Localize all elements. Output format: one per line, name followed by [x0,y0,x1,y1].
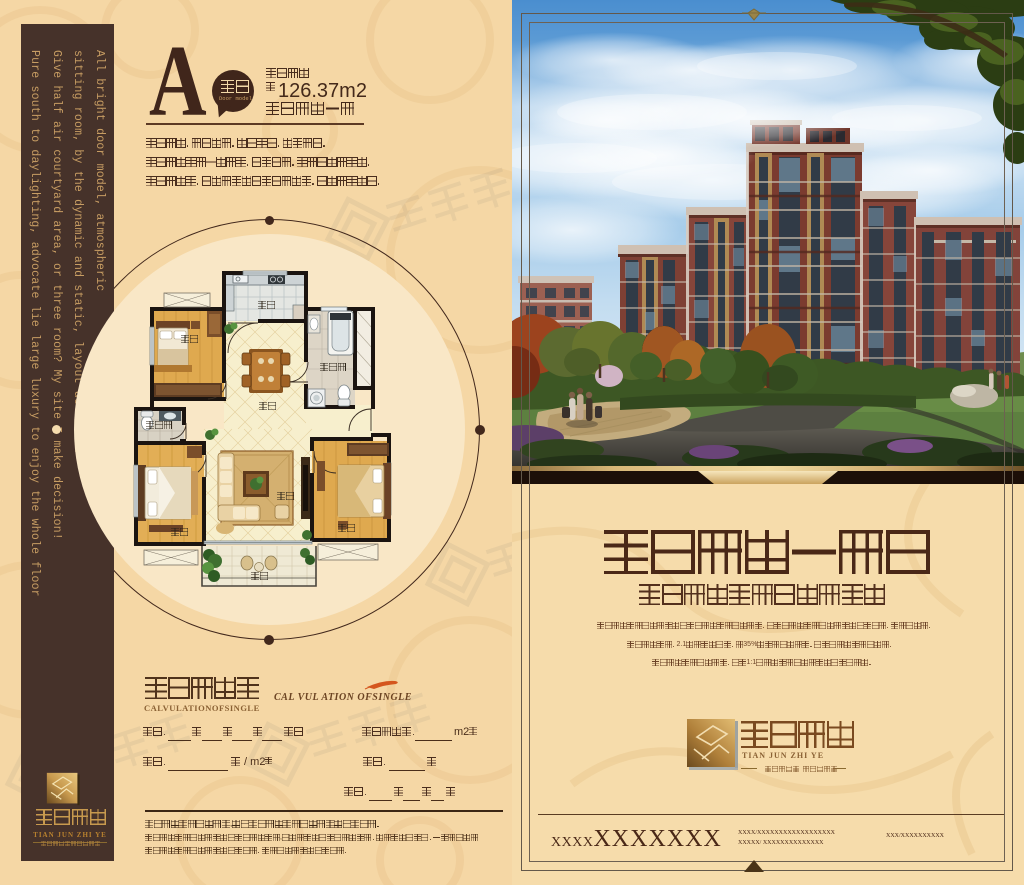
svg-text:CAL VUL ATION OFSINGLE: CAL VUL ATION OFSINGLE [274,692,412,703]
